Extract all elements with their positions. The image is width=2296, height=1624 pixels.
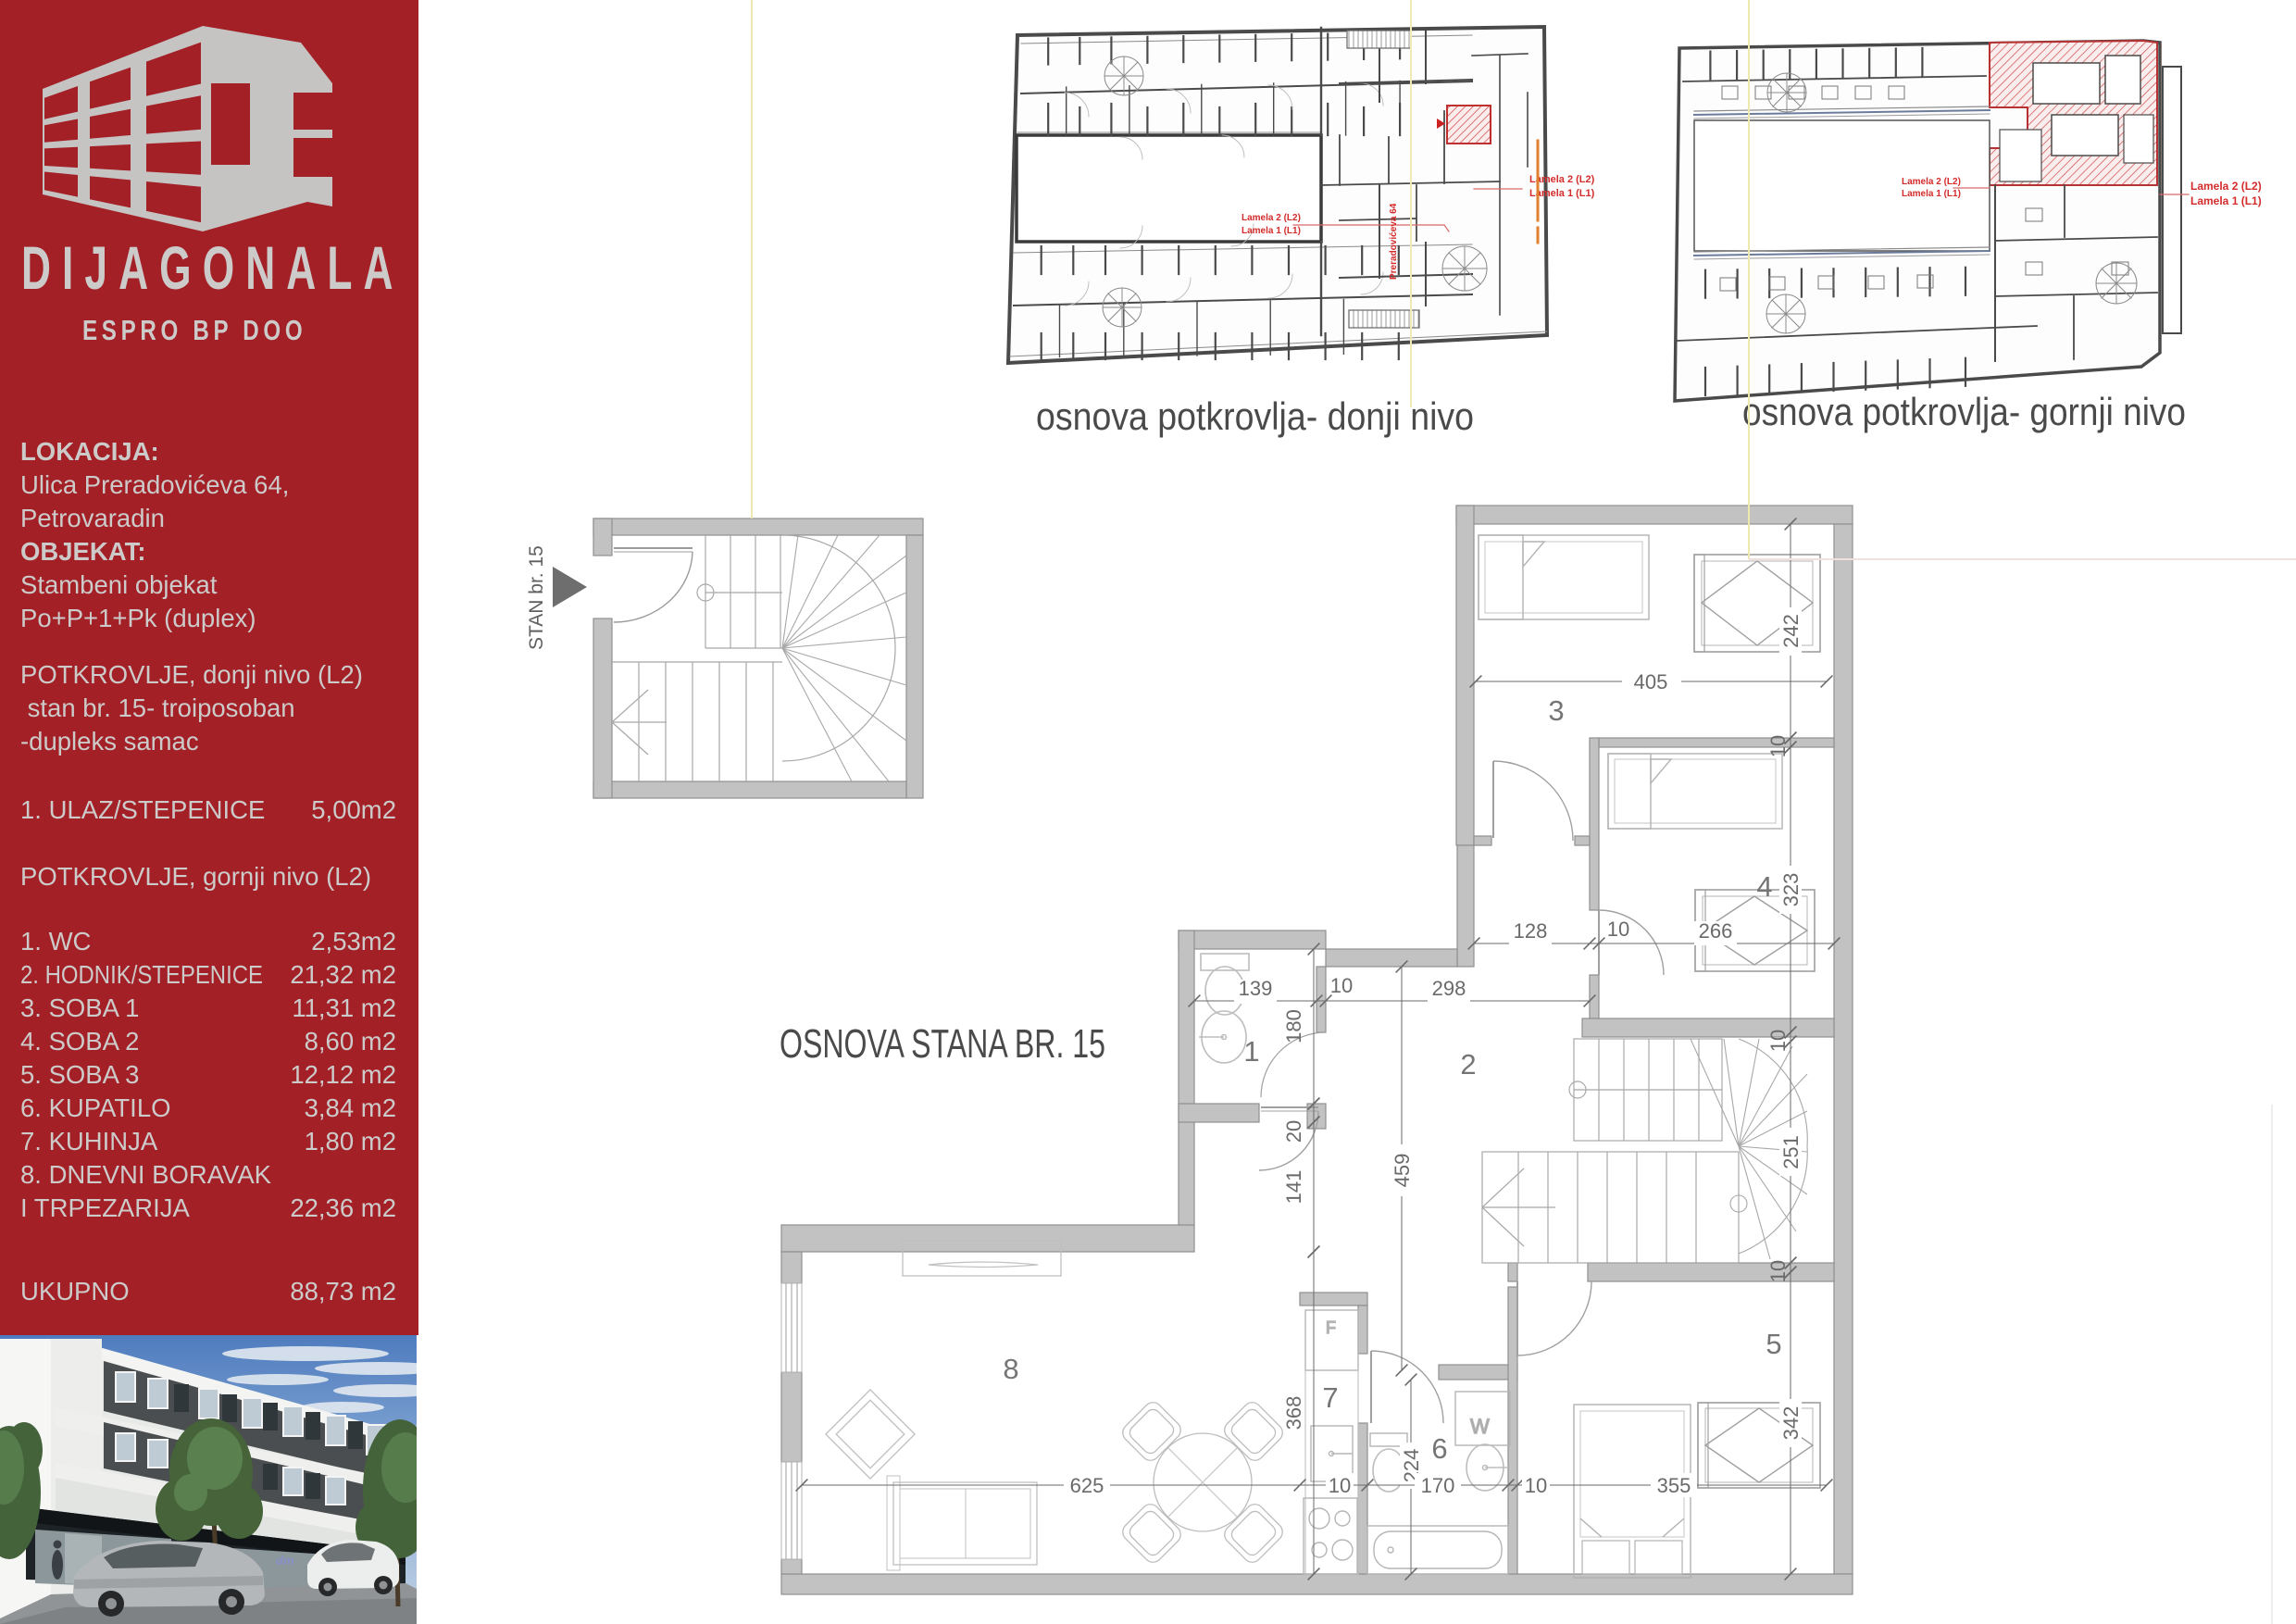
svg-text:459: 459 <box>1391 1154 1414 1188</box>
svg-text:7: 7 <box>1322 1381 1338 1414</box>
svg-text:Preradovićeva 64: Preradovićeva 64 <box>1389 203 1399 280</box>
svg-text:10: 10 <box>1607 918 1629 941</box>
svg-text:8,60 m2: 8,60 m2 <box>305 1027 396 1056</box>
svg-text:Ulica Preradovićeva 64,: Ulica Preradovićeva 64, <box>20 470 289 499</box>
svg-text:170: 170 <box>1421 1474 1455 1497</box>
svg-text:POTKROVLJE, donji nivo (L2): POTKROVLJE, donji nivo (L2) <box>20 660 363 689</box>
svg-text:266: 266 <box>1699 919 1733 943</box>
svg-text:88,73 m2: 88,73 m2 <box>290 1277 396 1305</box>
svg-text:10: 10 <box>1766 1030 1790 1052</box>
svg-text:POTKROVLJE, gornji nivo (L2): POTKROVLJE, gornji nivo (L2) <box>20 862 371 891</box>
svg-text:8: 8 <box>1003 1353 1018 1385</box>
svg-text:Lamela 1 (L1): Lamela 1 (L1) <box>1902 189 1961 199</box>
svg-text:5,00m2: 5,00m2 <box>311 795 396 824</box>
svg-text:osnova potkrovlja- gornji nivo: osnova potkrovlja- gornji nivo <box>1742 390 2186 433</box>
svg-text:4. SOBA 2: 4. SOBA 2 <box>20 1027 139 1056</box>
svg-text:ESPRO BP DOO: ESPRO BP DOO <box>82 314 306 346</box>
svg-text:10: 10 <box>1766 1260 1790 1282</box>
svg-text:OBJEKAT:: OBJEKAT: <box>20 537 145 566</box>
svg-text:1. ULAZ/STEPENICE: 1. ULAZ/STEPENICE <box>20 795 265 824</box>
svg-text:139: 139 <box>1239 977 1273 1000</box>
svg-text:STAN br. 15: STAN br. 15 <box>526 545 547 650</box>
svg-text:10: 10 <box>1525 1474 1547 1497</box>
svg-text:DIJAGONALA: DIJAGONALA <box>21 233 405 302</box>
svg-text:Lamela 1 (L1): Lamela 1 (L1) <box>1242 226 1301 236</box>
svg-text:3,84 m2: 3,84 m2 <box>305 1093 396 1122</box>
svg-text:Stambeni objekat: Stambeni objekat <box>20 570 218 599</box>
svg-text:Lamela 2 (L2): Lamela 2 (L2) <box>1902 177 1961 187</box>
svg-text:323: 323 <box>1779 873 1803 907</box>
svg-text:128: 128 <box>1514 919 1548 943</box>
svg-text:22,36 m2: 22,36 m2 <box>290 1193 396 1222</box>
svg-text:368: 368 <box>1282 1396 1305 1430</box>
svg-text:10: 10 <box>1330 974 1353 997</box>
svg-text:3. SOBA 1: 3. SOBA 1 <box>20 993 139 1022</box>
svg-text:7. KUHINJA: 7. KUHINJA <box>20 1127 158 1156</box>
svg-text:Lamela 1 (L1): Lamela 1 (L1) <box>2190 194 2262 207</box>
svg-text:-dupleks samac: -dupleks samac <box>20 727 199 756</box>
svg-text:6: 6 <box>1431 1432 1447 1465</box>
svg-text:251: 251 <box>1779 1135 1803 1169</box>
svg-text:stan br. 15- troiposoban: stan br. 15- troiposoban <box>20 693 295 722</box>
svg-text:F: F <box>1326 1318 1336 1337</box>
svg-text:I TRPEZARIJA: I TRPEZARIJA <box>20 1193 191 1222</box>
svg-text:10: 10 <box>1329 1474 1351 1497</box>
svg-text:1,80 m2: 1,80 m2 <box>305 1127 396 1156</box>
svg-text:4: 4 <box>1756 870 1772 903</box>
svg-text:180: 180 <box>1282 1009 1305 1043</box>
svg-text:12,12 m2: 12,12 m2 <box>290 1060 396 1089</box>
svg-text:5: 5 <box>1766 1328 1781 1360</box>
svg-text:Lamela 2 (L2): Lamela 2 (L2) <box>2190 180 2262 193</box>
svg-text:5. SOBA 3: 5. SOBA 3 <box>20 1060 139 1089</box>
svg-text:242: 242 <box>1779 614 1803 648</box>
svg-text:20: 20 <box>1282 1120 1305 1143</box>
svg-text:10: 10 <box>1766 735 1790 757</box>
svg-text:Lamela 2 (L2): Lamela 2 (L2) <box>1529 174 1595 185</box>
svg-text:OSNOVA STANA BR. 15: OSNOVA STANA BR. 15 <box>780 1021 1105 1067</box>
svg-text:1: 1 <box>1243 1035 1259 1068</box>
svg-text:Po+P+1+Pk (duplex): Po+P+1+Pk (duplex) <box>20 604 256 632</box>
svg-text:625: 625 <box>1070 1474 1104 1497</box>
svg-text:osnova potkrovlja- donji nivo: osnova potkrovlja- donji nivo <box>1036 394 1474 438</box>
svg-text:342: 342 <box>1779 1406 1803 1441</box>
svg-text:2,53m2: 2,53m2 <box>311 927 396 956</box>
svg-text:3: 3 <box>1548 694 1564 727</box>
svg-text:2. HODNIK/STEPENICE: 2. HODNIK/STEPENICE <box>20 960 263 989</box>
svg-text:Lamela 1 (L1): Lamela 1 (L1) <box>1529 188 1595 199</box>
svg-text:11,31 m2: 11,31 m2 <box>292 993 396 1022</box>
svg-text:W: W <box>1470 1415 1490 1438</box>
svg-text:2: 2 <box>1460 1048 1476 1081</box>
svg-text:405: 405 <box>1634 670 1668 693</box>
svg-text:298: 298 <box>1432 977 1466 1000</box>
svg-text:21,32 m2: 21,32 m2 <box>290 960 396 989</box>
svg-text:8. DNEVNI BORAVAK: 8. DNEVNI BORAVAK <box>20 1160 272 1189</box>
svg-text:dm: dm <box>276 1554 294 1568</box>
svg-text:355: 355 <box>1657 1474 1691 1497</box>
svg-text:Petrovaradin: Petrovaradin <box>20 504 165 532</box>
svg-text:UKUPNO: UKUPNO <box>20 1277 130 1305</box>
svg-text:Lamela 2 (L2): Lamela 2 (L2) <box>1242 213 1301 223</box>
svg-text:LOKACIJA:: LOKACIJA: <box>20 437 159 466</box>
svg-text:1. WC: 1. WC <box>20 927 91 956</box>
svg-text:6. KUPATILO: 6. KUPATILO <box>20 1093 171 1122</box>
svg-text:141: 141 <box>1282 1170 1305 1205</box>
